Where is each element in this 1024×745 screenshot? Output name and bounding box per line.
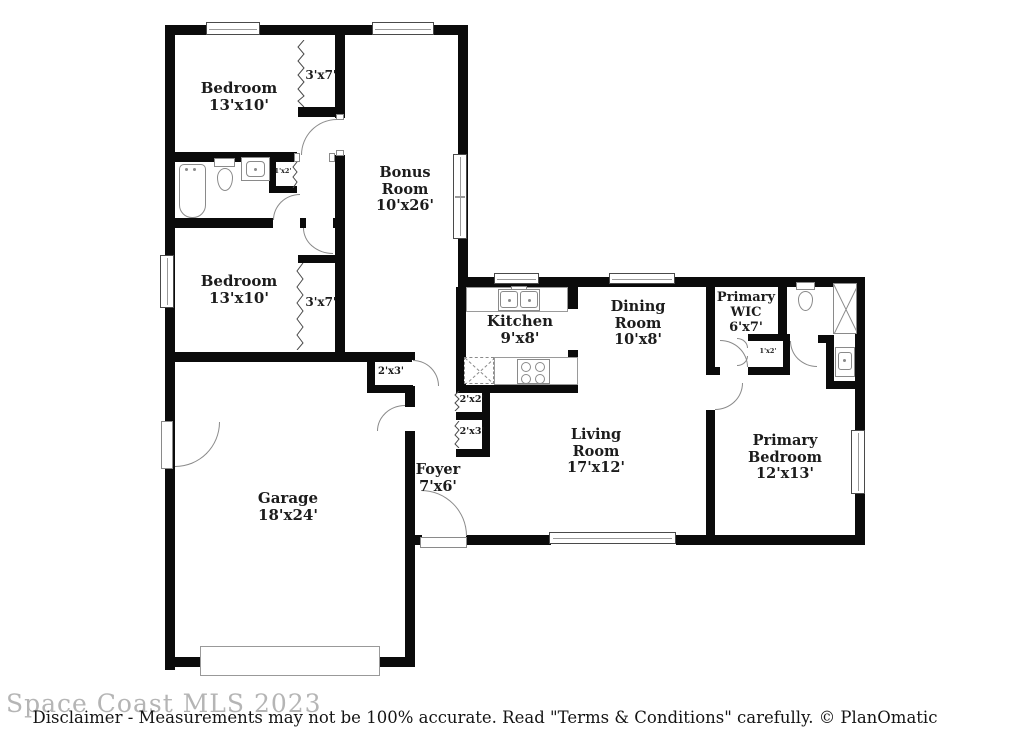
door-swing-arc	[421, 490, 467, 536]
burner-icon	[521, 374, 531, 384]
door-swing-arc	[377, 405, 405, 431]
window	[160, 255, 174, 308]
room-label-linen-2: 1'x2'	[754, 348, 782, 355]
wall	[676, 535, 865, 545]
door-swing-arc	[301, 119, 337, 155]
door-swing-arc	[273, 194, 300, 220]
door-swing-arc	[715, 383, 743, 410]
faucet-icon	[193, 168, 196, 171]
room-label-primary-wic: Primary WIC 6'x7'	[707, 291, 785, 335]
door-swing-arc	[737, 338, 748, 348]
room-dims: 10'x8'	[598, 332, 678, 349]
room-dims: 1'x2'	[270, 168, 296, 175]
room-label-living-room: Living Room 17'x12'	[556, 427, 636, 477]
burner-icon	[535, 374, 545, 384]
window	[372, 22, 434, 35]
room-label-bedroom-2: Bedroom 13'x10'	[174, 273, 304, 307]
wall	[783, 334, 790, 374]
wall	[165, 657, 205, 667]
wall	[706, 410, 715, 543]
room-name: Garage	[238, 490, 338, 507]
room-name: Bonus Room	[365, 165, 445, 198]
window	[453, 154, 467, 239]
room-dims: 9'x8'	[470, 330, 570, 347]
door-jamb	[336, 150, 344, 156]
wall	[165, 25, 175, 670]
wall	[826, 381, 865, 389]
wall	[706, 367, 720, 375]
door-swing-arc	[303, 228, 333, 254]
toilet-icon	[214, 158, 235, 167]
toilet-icon	[796, 282, 815, 290]
room-dims: 6'x7'	[707, 321, 785, 336]
room-dims: 18'x24'	[238, 507, 338, 524]
room-name: Foyer	[406, 462, 470, 479]
door-swing-arc	[175, 422, 220, 467]
burner-icon	[535, 362, 545, 372]
room-label-foyer: Foyer 7'x6'	[406, 462, 470, 495]
wall	[298, 255, 343, 263]
room-name: Primary Bedroom	[745, 433, 825, 466]
room-name: Kitchen	[470, 313, 570, 330]
door-swing-arc	[790, 341, 817, 367]
burner-icon	[521, 362, 531, 372]
wall	[456, 412, 490, 420]
garage-side-door-leaf	[161, 421, 173, 469]
room-dims: 13'x10'	[174, 290, 304, 307]
door-jamb	[336, 114, 344, 120]
room-label-closet-1: 3'x7'	[301, 69, 341, 83]
room-label-primary-bedroom: Primary Bedroom 12'x13'	[745, 433, 825, 483]
room-name: Bedroom	[174, 80, 304, 97]
room-dims: 10'x26'	[365, 198, 445, 215]
wall	[466, 535, 551, 545]
drain-icon	[508, 299, 511, 302]
wall	[818, 335, 834, 343]
room-dims: 13'x10'	[174, 97, 304, 114]
room-dims: 3'x7'	[301, 69, 341, 83]
wall	[300, 218, 306, 228]
door-jamb	[294, 153, 300, 162]
refrigerator-icon	[464, 357, 494, 384]
drain-icon	[528, 299, 531, 302]
disclaimer-text: Disclaimer - Measurements may not be 100…	[0, 708, 970, 727]
room-label-bedroom-1: Bedroom 13'x10'	[174, 80, 304, 114]
wall	[568, 287, 578, 309]
door-jamb	[329, 153, 335, 162]
drain-icon	[843, 359, 846, 362]
window	[549, 532, 676, 544]
room-dims: 17'x12'	[556, 460, 636, 477]
room-dims: 7'x6'	[406, 479, 470, 496]
wall	[165, 218, 273, 228]
room-name: Primary WIC	[707, 291, 785, 321]
room-dims: 2'x2'	[452, 395, 492, 406]
entry-door-leaf	[420, 537, 467, 548]
room-dims: 2'x3'	[452, 427, 492, 438]
room-dims: 2'x3'	[369, 366, 413, 377]
window	[494, 273, 539, 284]
room-label-garage: Garage 18'x24'	[238, 490, 338, 524]
room-label-hall-closet: 2'x3'	[369, 366, 413, 377]
shower-icon	[833, 283, 857, 334]
window	[851, 430, 865, 494]
room-name: Living Room	[556, 427, 636, 460]
room-label-closet-2x3: 2'x3'	[452, 427, 492, 438]
toilet-icon	[217, 168, 233, 191]
wall	[367, 385, 413, 393]
room-label-closet-2: 3'x7'	[301, 296, 341, 310]
drain-icon	[254, 168, 257, 171]
room-label-linen-1: 1'x2'	[270, 168, 296, 175]
garage-door	[200, 646, 380, 676]
room-label-kitchen: Kitchen 9'x8'	[470, 313, 570, 347]
room-name: Dining Room	[598, 299, 678, 332]
window	[609, 273, 675, 284]
floor-plan: Bedroom 13'x10' 3'x7' Bonus Room 10'x26'…	[0, 0, 1024, 745]
wall	[456, 449, 490, 457]
room-label-dining-room: Dining Room 10'x8'	[598, 299, 678, 349]
room-dims: 1'x2'	[754, 348, 782, 355]
toilet-icon	[798, 291, 813, 311]
faucet-icon	[185, 168, 188, 171]
window	[206, 22, 260, 35]
room-dims: 12'x13'	[745, 466, 825, 483]
door-swing-arc	[413, 360, 439, 386]
room-dims: 3'x7'	[301, 296, 341, 310]
wall	[456, 385, 578, 393]
room-name: Bedroom	[174, 273, 304, 290]
room-label-bonus-room: Bonus Room 10'x26'	[365, 165, 445, 215]
bathtub-icon	[179, 164, 206, 218]
room-label-closet-2x2: 2'x2'	[452, 395, 492, 406]
